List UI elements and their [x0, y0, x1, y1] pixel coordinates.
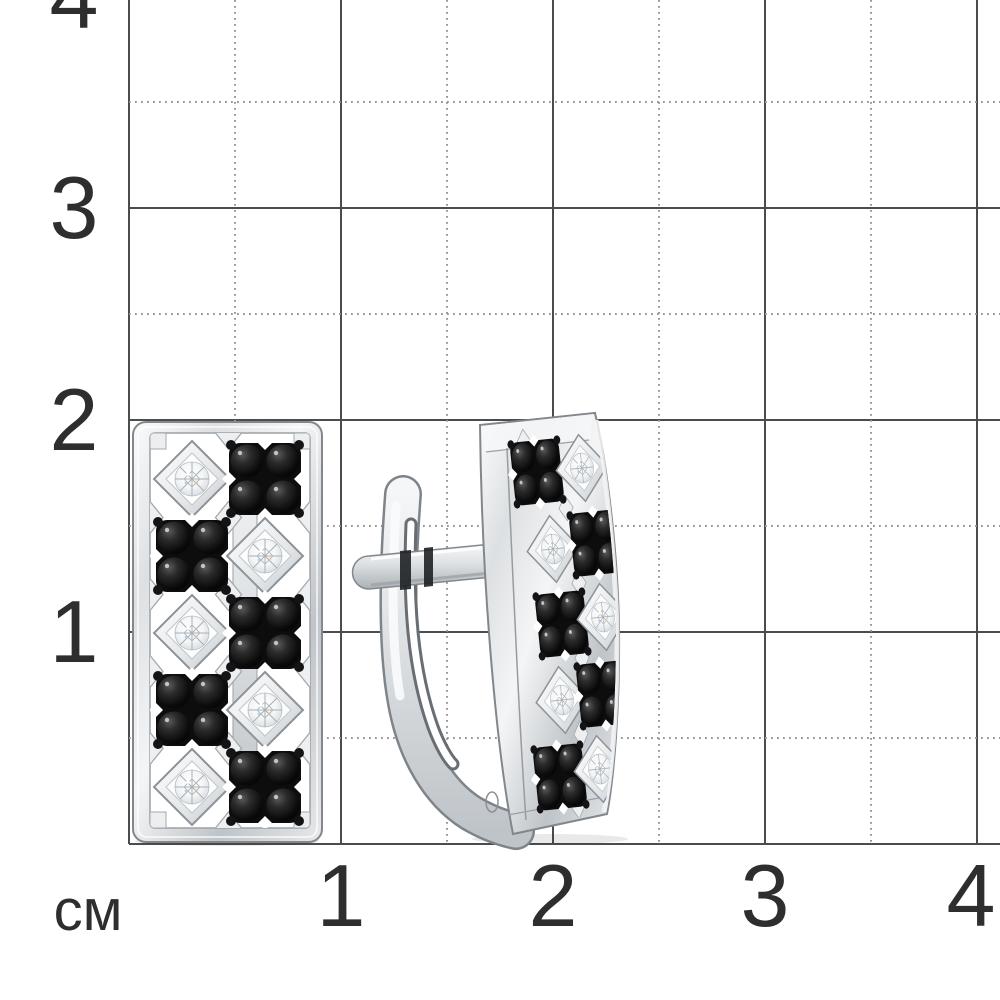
y-axis-label-2: 2 [50, 376, 99, 464]
x-axis-label-4: 4 [947, 852, 996, 940]
left-earring-stone-panel [137, 417, 323, 844]
black-stone-cluster [149, 513, 235, 599]
lattice-corner [150, 433, 166, 449]
pin-latch-shadow [424, 547, 433, 587]
y-axis-label-3: 3 [50, 164, 99, 252]
earrings-on-ruler-image [0, 0, 1000, 1000]
x-axis-label-2: 2 [529, 852, 578, 940]
pin-latch-shadow [400, 550, 411, 590]
lattice-corner [150, 812, 166, 828]
x-axis-label-3: 3 [741, 852, 790, 940]
earring-left [133, 417, 323, 844]
black-stone-cluster [222, 590, 308, 676]
black-stone-cluster [222, 436, 308, 522]
black-stone-cluster [222, 744, 308, 830]
black-stone-cluster [149, 667, 235, 753]
y-axis-label-1: 1 [50, 588, 99, 676]
photo-canvas: 4 3 2 1 см 1 2 3 4 [0, 0, 1000, 1000]
earring-right [353, 413, 637, 834]
x-axis-label-1: 1 [317, 852, 366, 940]
unit-label-cm: см [54, 882, 123, 940]
y-axis-label-4: 4 [50, 0, 99, 42]
